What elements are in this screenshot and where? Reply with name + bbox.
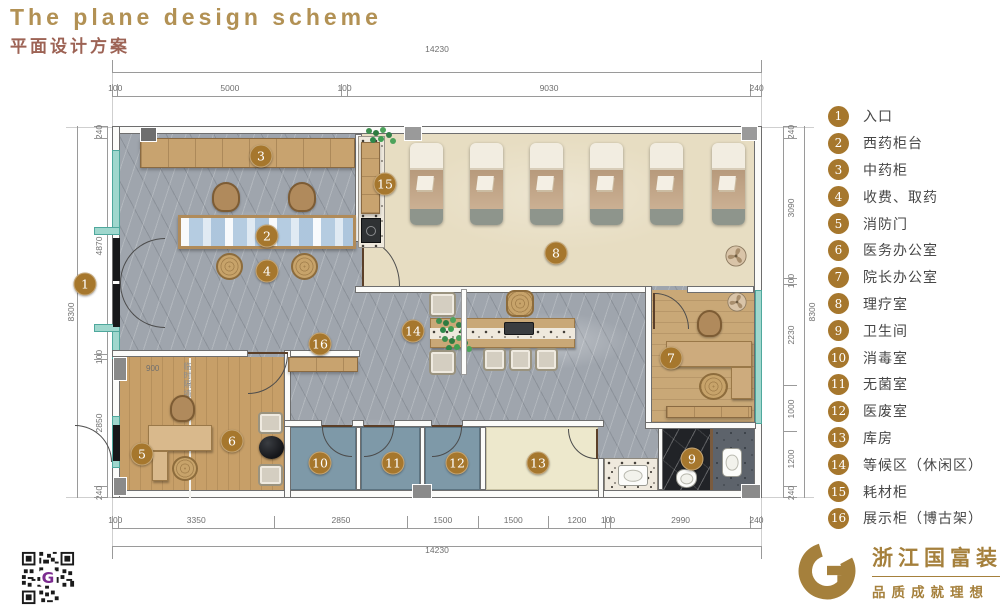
legend-label: 卫生间: [863, 321, 908, 341]
office-glass-wall: [755, 290, 762, 424]
column: [412, 484, 432, 499]
waiting-chair: [506, 290, 534, 317]
legend-number-badge: 2: [828, 133, 849, 154]
legend-number-badge: 9: [828, 320, 849, 341]
office-chair: [172, 456, 198, 481]
partition-label: 临时隔墙: [182, 362, 193, 398]
plan-marker-11: 11: [382, 452, 405, 475]
legend-number-badge: 16: [828, 508, 849, 529]
wall-director-left: [645, 286, 652, 429]
tea-set: [504, 322, 534, 335]
column: [741, 126, 758, 141]
office-chair: [170, 395, 195, 422]
wall-exterior-bottom: [112, 490, 762, 498]
legend-label: 入口: [863, 106, 893, 126]
legend-item: 4收费、取药: [828, 183, 998, 210]
plants: [366, 128, 372, 134]
company-name: 浙江国富装饰: [872, 542, 1000, 572]
plan-marker-3: 3: [250, 145, 273, 168]
qr-code: G: [20, 550, 76, 606]
director-desk-return: [731, 367, 752, 399]
plan-marker-6: 6: [221, 430, 244, 453]
counter-chair: [288, 182, 316, 212]
legend-item: 13库房: [828, 425, 998, 452]
table-plants: [436, 318, 442, 324]
legend-label: 展示柜（博古架）: [863, 508, 983, 528]
wall-physio-bottom: [355, 286, 651, 293]
legend-label: 消防门: [863, 214, 908, 234]
legend-item: 11无菌室: [828, 371, 998, 398]
legend-number-badge: 10: [828, 347, 849, 368]
column: [404, 126, 422, 141]
legend-number-badge: 14: [828, 454, 849, 475]
wall-rooms-top: [352, 420, 364, 427]
treatment-bed: [590, 143, 623, 225]
director-cabinet: [666, 406, 752, 418]
column: [741, 484, 761, 499]
entrance-door-leaf: [113, 284, 120, 327]
counter-chair: [212, 182, 240, 212]
legend-label: 等候区（休闲区）: [863, 455, 983, 475]
dim-row-bottom: 100 3350 2850 1500 1500 1200 100 2990 24…: [112, 516, 762, 529]
fire-door-leaf: [113, 425, 120, 461]
dim-row-top: 100 5000 100 9030 240: [112, 84, 762, 97]
wall-room-divider: [480, 427, 486, 490]
wall-bath-left: [658, 428, 663, 490]
extension-line: [112, 68, 113, 126]
treatment-bed: [530, 143, 563, 225]
company-logo: 浙江国富装饰 品质成就理想: [796, 540, 1000, 602]
guest-chair: [697, 310, 722, 337]
legend-number-badge: 5: [828, 213, 849, 234]
divider-screen: [461, 289, 467, 375]
legend-item: 6医务办公室: [828, 237, 998, 264]
plan-marker-2: 2: [256, 225, 279, 248]
herbal-medicine-cabinet: [140, 138, 355, 168]
extension-line: [761, 68, 762, 126]
physio-sink: [361, 218, 381, 243]
legend-label: 无菌室: [863, 374, 908, 394]
treatment-bed: [470, 143, 503, 225]
side-table: [259, 436, 284, 459]
legend-item: 9卫生间: [828, 317, 998, 344]
legend-item: 15耗材柜: [828, 478, 998, 505]
legend-label: 消毒室: [863, 348, 908, 368]
treatment-bed: [410, 143, 443, 225]
logo-divider: [872, 576, 1000, 577]
plan-marker-9: 9: [681, 448, 704, 471]
tea-table-marble-strip: [430, 328, 575, 339]
plan-marker-10: 10: [309, 452, 332, 475]
storefront-glass: [112, 150, 120, 232]
ceiling-fan-icon: [727, 292, 747, 312]
legend-number-badge: 15: [828, 481, 849, 502]
dim-total-top: 14230: [112, 60, 762, 73]
wall-exterior-top: [112, 126, 762, 134]
legend-label: 医务办公室: [863, 240, 938, 260]
office-desk: [148, 425, 212, 451]
legend-item: 10消毒室: [828, 344, 998, 371]
legend-number-badge: 8: [828, 293, 849, 314]
legend-item: 12医废室: [828, 398, 998, 425]
legend-label: 中药柜: [863, 160, 908, 180]
director-chair: [699, 373, 728, 400]
page-title-english: The plane design scheme: [10, 4, 382, 31]
legend-number-badge: 6: [828, 240, 849, 261]
lounge-chair: [258, 412, 283, 434]
dim-total-bottom: 14230: [112, 546, 762, 559]
lounge-chair: [258, 464, 283, 486]
floor-plan: 900 临时隔墙: [112, 126, 762, 498]
table-plants: [442, 336, 448, 342]
office-desk-return: [152, 451, 168, 481]
waiting-chair: [535, 348, 558, 371]
legend-number-badge: 4: [828, 186, 849, 207]
plan-marker-14: 14: [402, 320, 425, 343]
column: [113, 477, 127, 496]
legend-item: 8理疗室: [828, 291, 998, 318]
plan-marker-15: 15: [374, 173, 397, 196]
plan-marker-1: 1: [74, 273, 97, 296]
waiting-chair: [483, 348, 506, 371]
legend-label: 院长办公室: [863, 267, 938, 287]
wall-rooms-top: [462, 420, 604, 427]
legend-item: 3中药柜: [828, 157, 998, 184]
plan-marker-4: 4: [256, 260, 279, 283]
legend-item: 7院长办公室: [828, 264, 998, 291]
treatment-bed: [712, 143, 745, 225]
waiting-chair: [429, 292, 456, 317]
plan-marker-5: 5: [131, 443, 154, 466]
column: [140, 127, 157, 142]
legend-number-badge: 3: [828, 159, 849, 180]
page-title-chinese: 平面设计方案: [10, 32, 130, 57]
dim-total-right: 8300: [804, 126, 818, 498]
wall-rooms-top: [284, 420, 322, 427]
storage-door-leaf: [596, 429, 598, 459]
qr-center-letter: G: [42, 569, 55, 587]
company-tagline: 品质成就理想: [872, 581, 1000, 601]
vanity-sink: [618, 465, 648, 486]
legend-item: 5消防门: [828, 210, 998, 237]
toilet: [676, 469, 697, 488]
wall-rooms-top: [394, 420, 432, 427]
floor-plan-sheet: The plane design scheme 平面设计方案 14230 100…: [0, 0, 1000, 612]
legend-number-badge: 11: [828, 374, 849, 395]
wall-room-divider: [420, 427, 425, 490]
ceiling-fan-icon: [725, 245, 747, 267]
legend-item: 2西药柜台: [828, 130, 998, 157]
treatment-bed: [650, 143, 683, 225]
legend-number-badge: 7: [828, 267, 849, 288]
company-logo-icon: [796, 540, 858, 602]
legend-number-badge: 13: [828, 427, 849, 448]
legend-label: 医废室: [863, 401, 908, 421]
plan-marker-16: 16: [309, 333, 332, 356]
display-cabinet: [288, 357, 358, 372]
legend: 1入口 2西药柜台 3中药柜 4收费、取药 5消防门 6医务办公室 7院长办公室…: [828, 103, 998, 532]
legend-item: 1入口: [828, 103, 998, 130]
wall-room-divider: [356, 427, 361, 490]
plan-marker-12: 12: [446, 452, 469, 475]
legend-item: 16展示柜（博古架）: [828, 505, 998, 532]
waiting-chair: [429, 350, 456, 375]
customer-chair: [291, 253, 318, 280]
legend-label: 耗材柜: [863, 482, 908, 502]
legend-number-badge: 1: [828, 106, 849, 127]
entry-side-panel: [94, 227, 120, 235]
plan-marker-8: 8: [545, 242, 568, 265]
legend-item: 14等候区（休闲区）: [828, 451, 998, 478]
plan-marker-7: 7: [660, 347, 683, 370]
legend-label: 西药柜台: [863, 133, 923, 153]
plan-marker-13: 13: [527, 452, 550, 475]
waiting-chair: [509, 348, 532, 371]
dim-col-right: 240 3090 100 2230 1000 1200 240: [783, 126, 797, 498]
legend-number-badge: 12: [828, 401, 849, 422]
legend-label: 收费、取药: [863, 187, 938, 207]
legend-label: 库房: [863, 428, 893, 448]
column: [113, 357, 127, 381]
partition-dim-label: 900: [146, 364, 159, 373]
wall-office-top: [112, 350, 248, 357]
customer-chair: [216, 253, 243, 280]
wall-storage-right: [598, 458, 604, 498]
legend-label: 理疗室: [863, 294, 908, 314]
entrance-door-leaf: [113, 238, 120, 281]
urinal: [722, 448, 742, 477]
